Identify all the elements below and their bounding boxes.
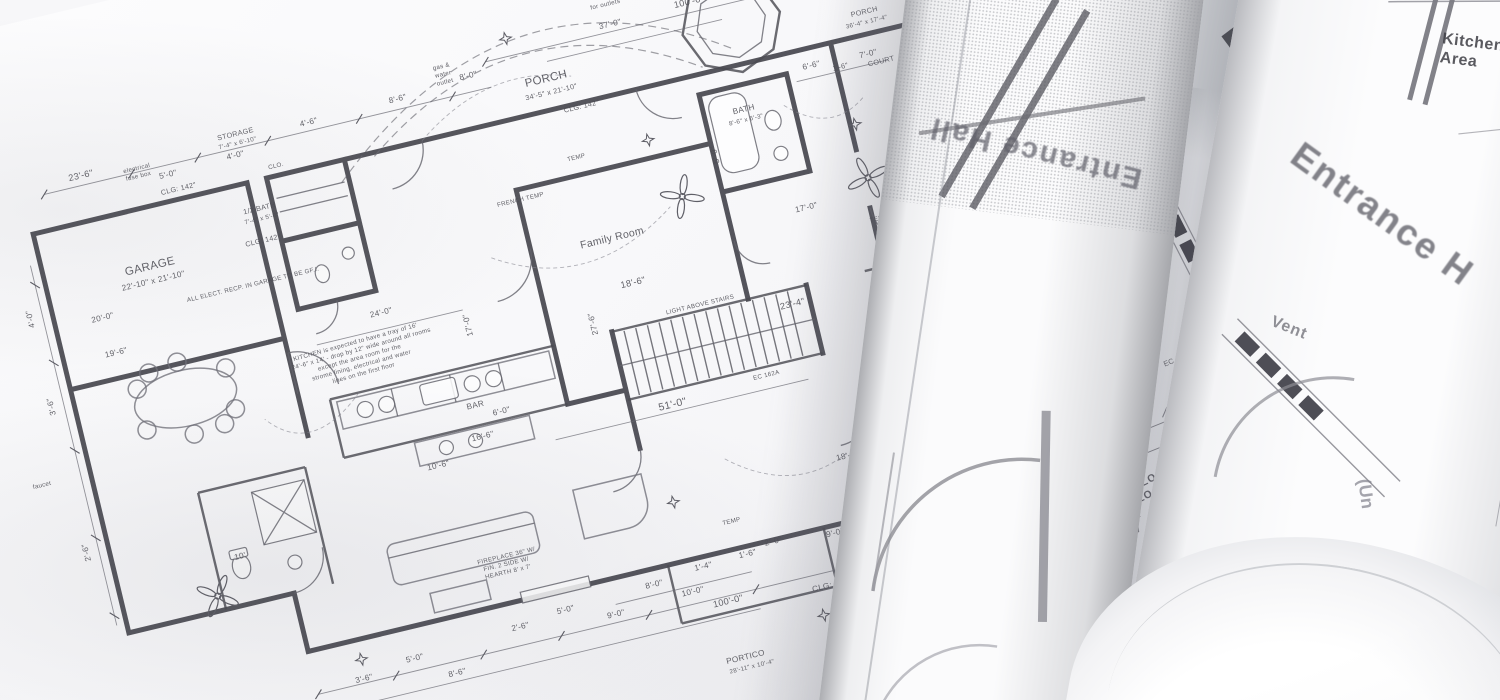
roll-right-kitchen-area-label: Kitchen Area <box>1439 29 1500 74</box>
blueprint-photo-scene: PORCH 34'-5" x 21'-10" CLG: 142" PORCH 3… <box>0 0 1500 700</box>
roll-right-unit-label: (Un <box>1353 477 1378 510</box>
